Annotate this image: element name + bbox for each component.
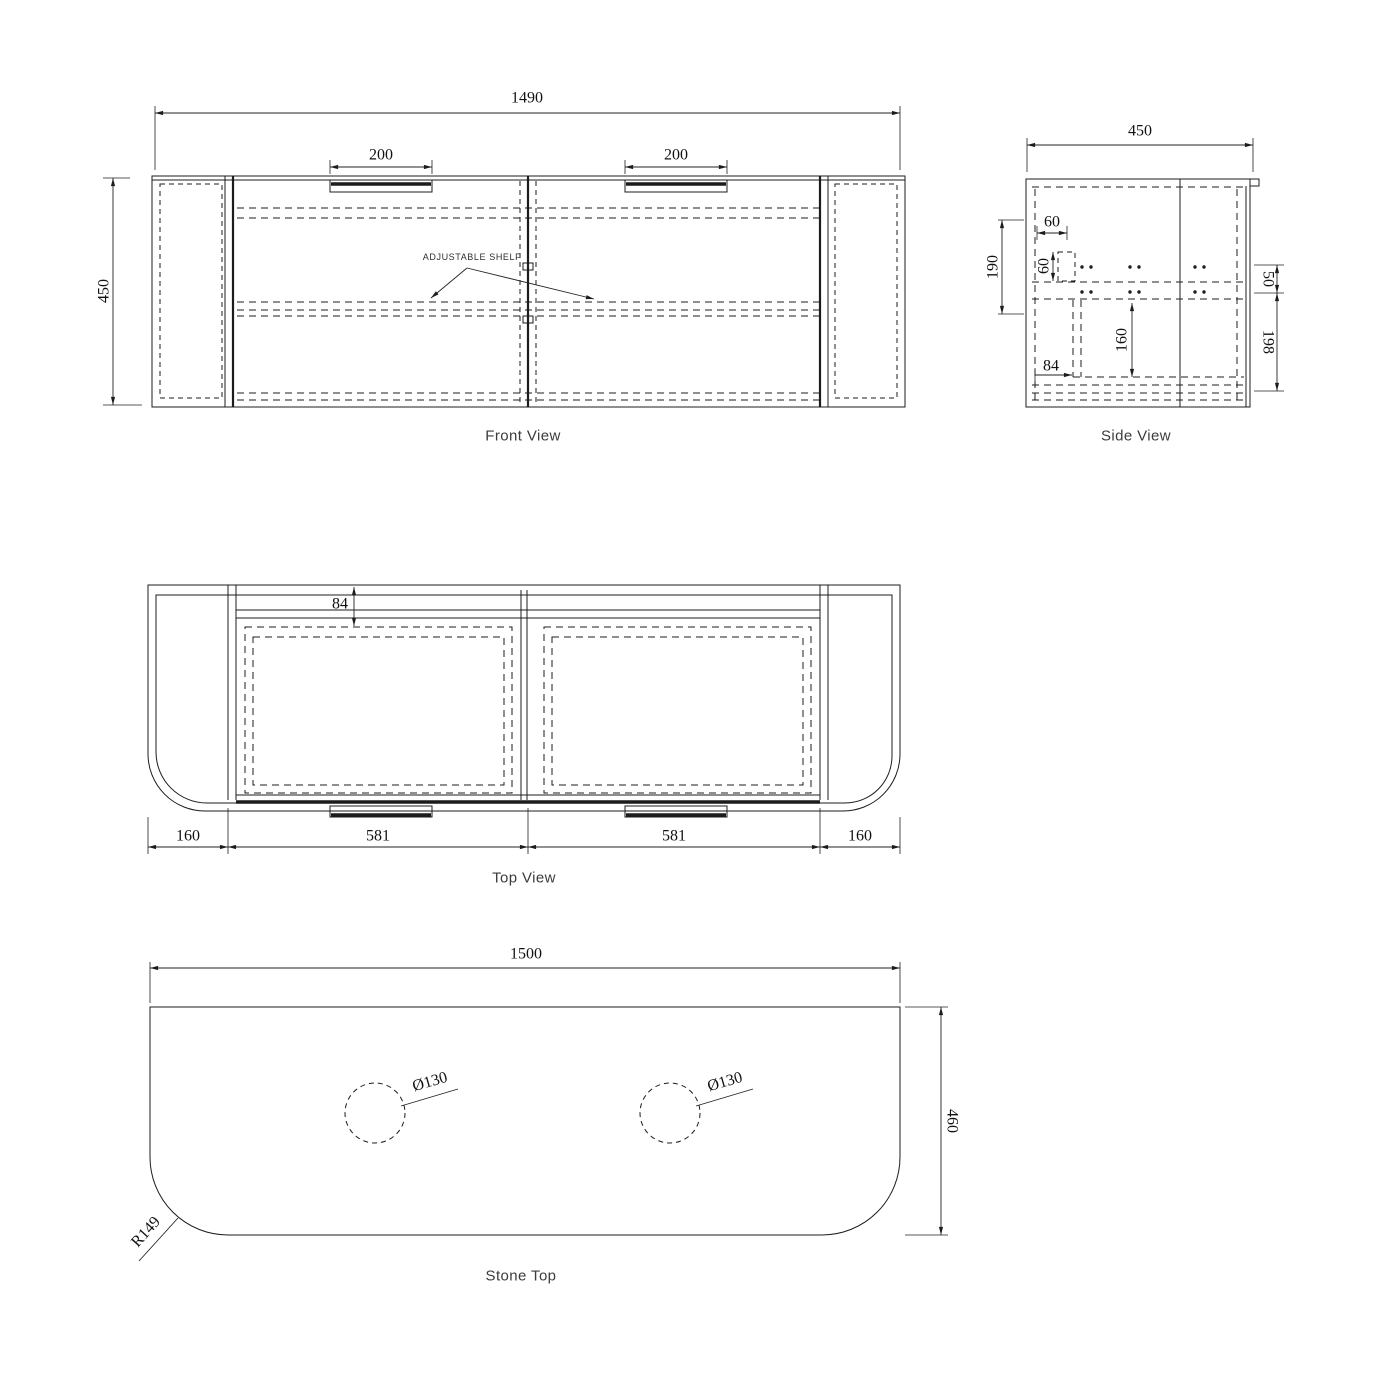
side-depth-dim-label: 450 bbox=[1128, 123, 1152, 140]
top-84-dim-label: 84 bbox=[332, 596, 348, 613]
stone-hole-left-dim-label: Ø130 bbox=[411, 1069, 450, 1095]
front-height-dim-label: 450 bbox=[96, 279, 113, 303]
side-view: 450 190 bbox=[985, 123, 1285, 445]
front-handle-right-dim-label: 200 bbox=[664, 147, 688, 164]
front-handle-left-dim-label: 200 bbox=[369, 147, 393, 164]
front-handle-right bbox=[625, 180, 727, 192]
side-190-dim-label: 190 bbox=[985, 255, 1002, 279]
adjustable-shelf-note: ADJUSTABLE SHELF bbox=[423, 252, 521, 262]
stone-outline bbox=[150, 1007, 900, 1235]
vanity-technical-drawing: 1490 450 bbox=[0, 0, 1400, 1400]
top-left-offset-dim-label: 160 bbox=[176, 828, 200, 845]
stone-tap-hole-left bbox=[345, 1083, 405, 1143]
side-198-dim-label: 198 bbox=[1260, 330, 1277, 354]
top-view: 84 160 581 581 160 Top View bbox=[148, 585, 900, 887]
side-shelf-pin-holes bbox=[1080, 265, 1205, 293]
side-rail-section-dashed bbox=[1058, 252, 1075, 281]
top-stone-outline-outer bbox=[148, 585, 900, 811]
stone-hole-right-dim-label: Ø130 bbox=[706, 1069, 745, 1095]
side-60h-dim-label: 60 bbox=[1044, 214, 1060, 231]
top-left-drawer-dashed bbox=[245, 627, 512, 793]
top-view-caption: Top View bbox=[492, 870, 556, 887]
stone-tap-hole-right bbox=[640, 1083, 700, 1143]
side-view-caption: Side View bbox=[1101, 428, 1171, 445]
stone-top-view: 1500 460 Ø130 Ø130 R149 Stone Top bbox=[128, 946, 960, 1285]
side-front-lip bbox=[1250, 179, 1259, 186]
side-50-dim-label: 50 bbox=[1260, 271, 1277, 287]
stone-width-dim-label: 1500 bbox=[510, 946, 542, 963]
stone-depth-dim-label: 460 bbox=[944, 1109, 961, 1133]
top-right-offset-dim-label: 160 bbox=[848, 828, 872, 845]
top-right-drawer-dashed bbox=[544, 627, 811, 793]
top-stone-outline-inner bbox=[156, 595, 892, 803]
front-width-dim-label: 1490 bbox=[511, 90, 543, 107]
front-handle-left bbox=[330, 180, 432, 192]
top-door-left-dim-label: 581 bbox=[366, 828, 390, 845]
side-160-dim-label: 160 bbox=[1114, 328, 1131, 352]
stone-radius-dim-label: R149 bbox=[128, 1213, 164, 1250]
stone-top-caption: Stone Top bbox=[486, 1268, 557, 1285]
side-84-dim-label: 84 bbox=[1043, 358, 1059, 375]
front-right-panel-dashed bbox=[835, 184, 897, 398]
front-left-panel-dashed bbox=[160, 184, 222, 398]
top-door-right-dim-label: 581 bbox=[662, 828, 686, 845]
front-view: 1490 450 bbox=[96, 90, 906, 445]
front-view-caption: Front View bbox=[485, 428, 560, 445]
drawing-sheet: 1490 450 bbox=[0, 0, 1400, 1400]
side-60v-dim-label: 60 bbox=[1036, 258, 1053, 274]
